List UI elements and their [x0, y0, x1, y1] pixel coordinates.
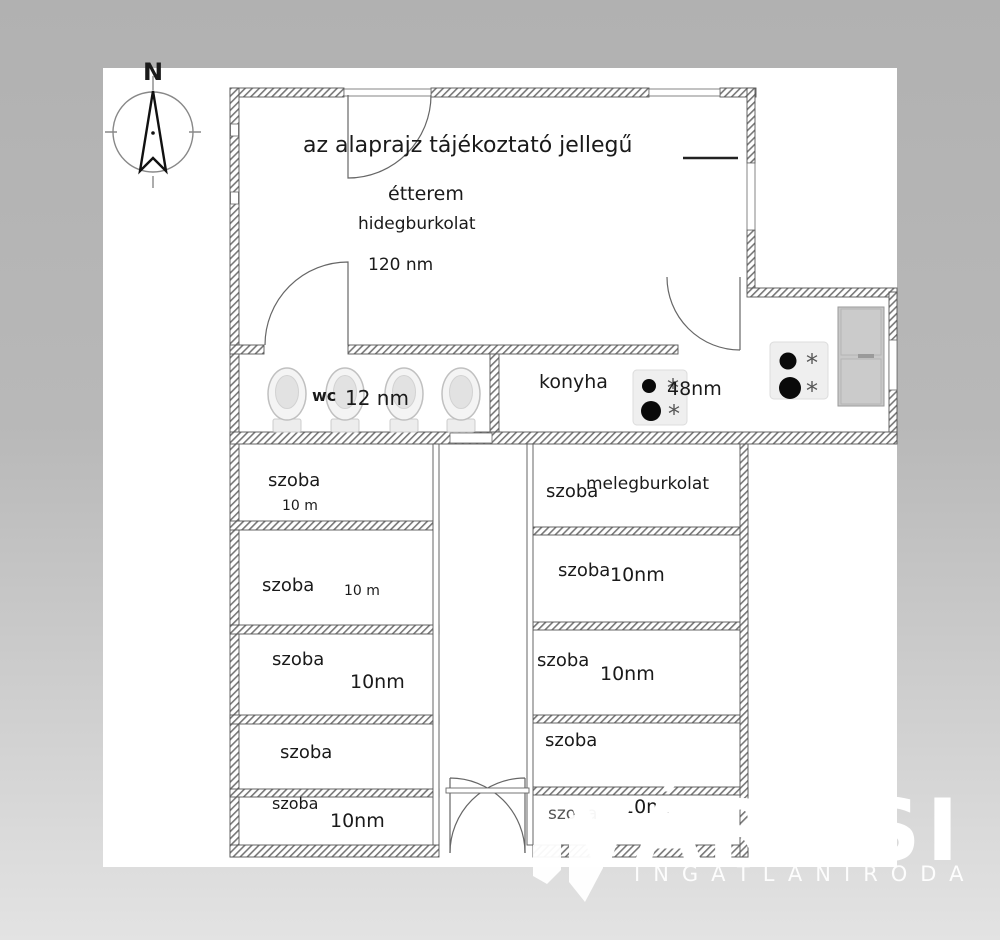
flooring-label-melegburkolat: melegburkolat — [586, 476, 709, 493]
area-label-szoba: 10 m — [282, 499, 318, 513]
room-label-szoba: szoba — [268, 472, 320, 490]
compass-north-label: N — [143, 60, 163, 84]
stove-icon-2: * * — [770, 342, 828, 405]
svg-text:*: * — [668, 400, 680, 428]
corridor-door-lintel — [446, 788, 529, 793]
area-label-szoba: 10nm — [600, 665, 655, 684]
room-label-szoba: szoba — [272, 796, 318, 812]
fridge-icon — [838, 307, 884, 406]
disclaimer-text: az alaprajz tájékoztató jellegű — [303, 135, 632, 157]
north-arrow-icon — [105, 76, 201, 188]
area-label-szoba: 10nm — [610, 566, 665, 585]
area-label-etterem: 120 nm — [368, 257, 433, 274]
area-label-konyha: 48nm — [667, 380, 722, 399]
room-label-wc: wc — [312, 388, 336, 404]
flooring-label-hidegburkolat: hidegburkolat — [358, 216, 476, 233]
room-label-konyha: konyha — [539, 373, 608, 392]
area-label-szoba: 10 m — [344, 584, 380, 598]
room-label-szoba: szoba — [272, 651, 324, 669]
svg-text:*: * — [806, 349, 818, 377]
room-label-etterem: étterem — [388, 185, 464, 204]
svg-text:*: * — [806, 377, 818, 405]
room-label-szoba: szoba — [545, 732, 597, 750]
room-label-szoba: szoba — [558, 562, 610, 580]
area-label-szoba: 10nm — [350, 673, 405, 692]
room-label-szoba: szoba — [280, 744, 332, 762]
area-label-szoba: 10nm — [330, 812, 385, 831]
room-label-szoba: szoba — [262, 577, 314, 595]
room-label-szoba: szoba — [537, 652, 589, 670]
watermark-subtitle-text: INGATLANIRODA — [634, 864, 976, 885]
screenshot-root: * * * * — [0, 0, 1000, 940]
area-label-wc: 12 nm — [345, 388, 409, 408]
